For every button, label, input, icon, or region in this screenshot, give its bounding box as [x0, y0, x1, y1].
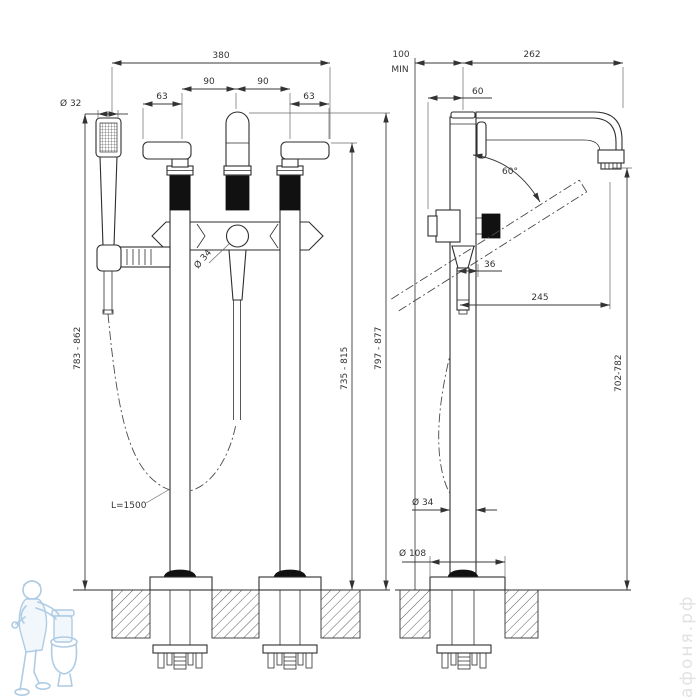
drawing-canvas: 380 90 90 63 63 Ø 32 783 - 862 735: [0, 0, 700, 700]
dim-outlet-height-label: 702-782: [614, 354, 624, 392]
dim-offset-left-label: 63: [156, 92, 167, 102]
dim-wall-distance-label: 100: [392, 50, 409, 60]
front-floor-and-bases: [73, 570, 390, 669]
center-diverter-knob: [224, 112, 251, 420]
dim-height-handle-label: 735 - 815: [340, 347, 350, 390]
side-dimensions: 100 MIN 262 60 60° 36 245 702-782 Ø 34: [391, 50, 632, 590]
side-base-plate: [430, 577, 505, 590]
dim-wall-distance-note: MIN: [391, 65, 408, 75]
side-spout: [476, 112, 624, 169]
right-lever-handle: [281, 142, 329, 159]
toilet-bowl: [52, 644, 77, 674]
dim-handshower-diameter-label: Ø 32: [60, 98, 81, 109]
left-column: [143, 142, 193, 578]
plumber-jacket: [19, 599, 46, 652]
side-handshower-holder: [436, 210, 460, 242]
plumber-wrench: [12, 622, 18, 628]
right-column: [277, 142, 329, 578]
dim-total-width-label: 380: [212, 51, 229, 61]
right-base: [259, 570, 321, 669]
faucet-technical-drawing: 380 90 90 63 63 Ø 32 783 - 862 735: [0, 0, 700, 700]
front-view: 380 90 90 63 63 Ø 32 783 - 862 735: [60, 51, 390, 669]
dim-spout-reach-total-label: 262: [523, 50, 540, 60]
dim-hose-length-label: L=1500: [111, 501, 147, 511]
spout-outlet: [598, 150, 624, 163]
dim-offset-right-label: 63: [303, 92, 314, 102]
side-view: 100 MIN 262 60 60° 36 245 702-782 Ø 34: [391, 50, 632, 669]
dim-base-diameter-label: Ø 108: [399, 548, 426, 559]
hand-shower-holder-arm: [118, 247, 170, 267]
side-column: [450, 112, 476, 578]
dim-column-diameter-label: Ø 34: [412, 497, 434, 508]
side-handle-knob: [482, 214, 500, 238]
dim-handle-offset-label: 60: [472, 87, 484, 97]
plumber-mascot-watermark: [12, 581, 77, 695]
left-lever-handle: [143, 142, 191, 159]
dim-swivel-angle-label: 60°: [502, 167, 518, 177]
watermark-site-text: афоня.рф: [677, 595, 697, 698]
dim-spout-diameter-label: Ø 34: [192, 247, 214, 271]
swivel-angle-arc: [473, 155, 540, 202]
dim-hose-offset-label: 36: [484, 260, 496, 270]
dim-spacing-right-label: 90: [257, 77, 269, 87]
dim-height-handshower-label: 783 - 862: [73, 327, 83, 370]
dim-height-total-label: 797 - 877: [374, 327, 384, 370]
side-floor-and-base: [395, 570, 631, 669]
left-base: [150, 570, 212, 669]
dim-spacing-left-label: 90: [203, 77, 215, 87]
toilet-base: [58, 674, 72, 686]
dim-spout-reach-label: 245: [531, 293, 548, 303]
